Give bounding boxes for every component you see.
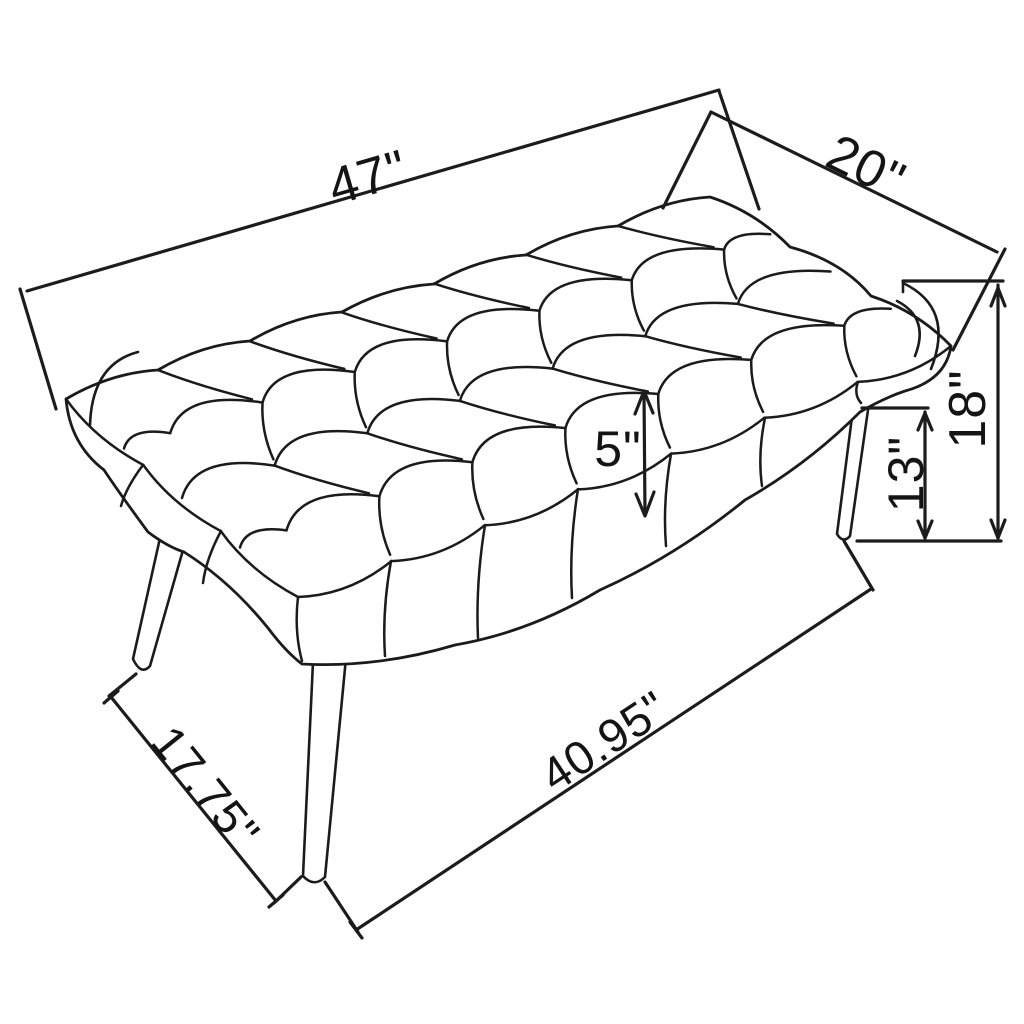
bench-leg-front bbox=[303, 658, 346, 882]
bench-dimension-diagram: 47" 20" 18" 13" 5" 40.95" 17.75" bbox=[0, 0, 1024, 1024]
leg-span-length-label: 40.95" bbox=[531, 680, 677, 802]
bench-leg-back-left bbox=[133, 538, 183, 670]
seat-cushion bbox=[66, 197, 951, 665]
overall-depth-label: 20" bbox=[818, 124, 915, 211]
seat-thickness-label: 5" bbox=[594, 421, 642, 477]
overall-length-label: 47" bbox=[322, 139, 414, 217]
overall-height-label: 18" bbox=[939, 369, 997, 448]
leg-span-depth-label: 17.75" bbox=[141, 716, 270, 859]
leg-height-label: 13" bbox=[878, 436, 934, 512]
bench-diagram-canvas: 47" 20" 18" 13" 5" 40.95" 17.75" bbox=[0, 0, 1024, 1024]
